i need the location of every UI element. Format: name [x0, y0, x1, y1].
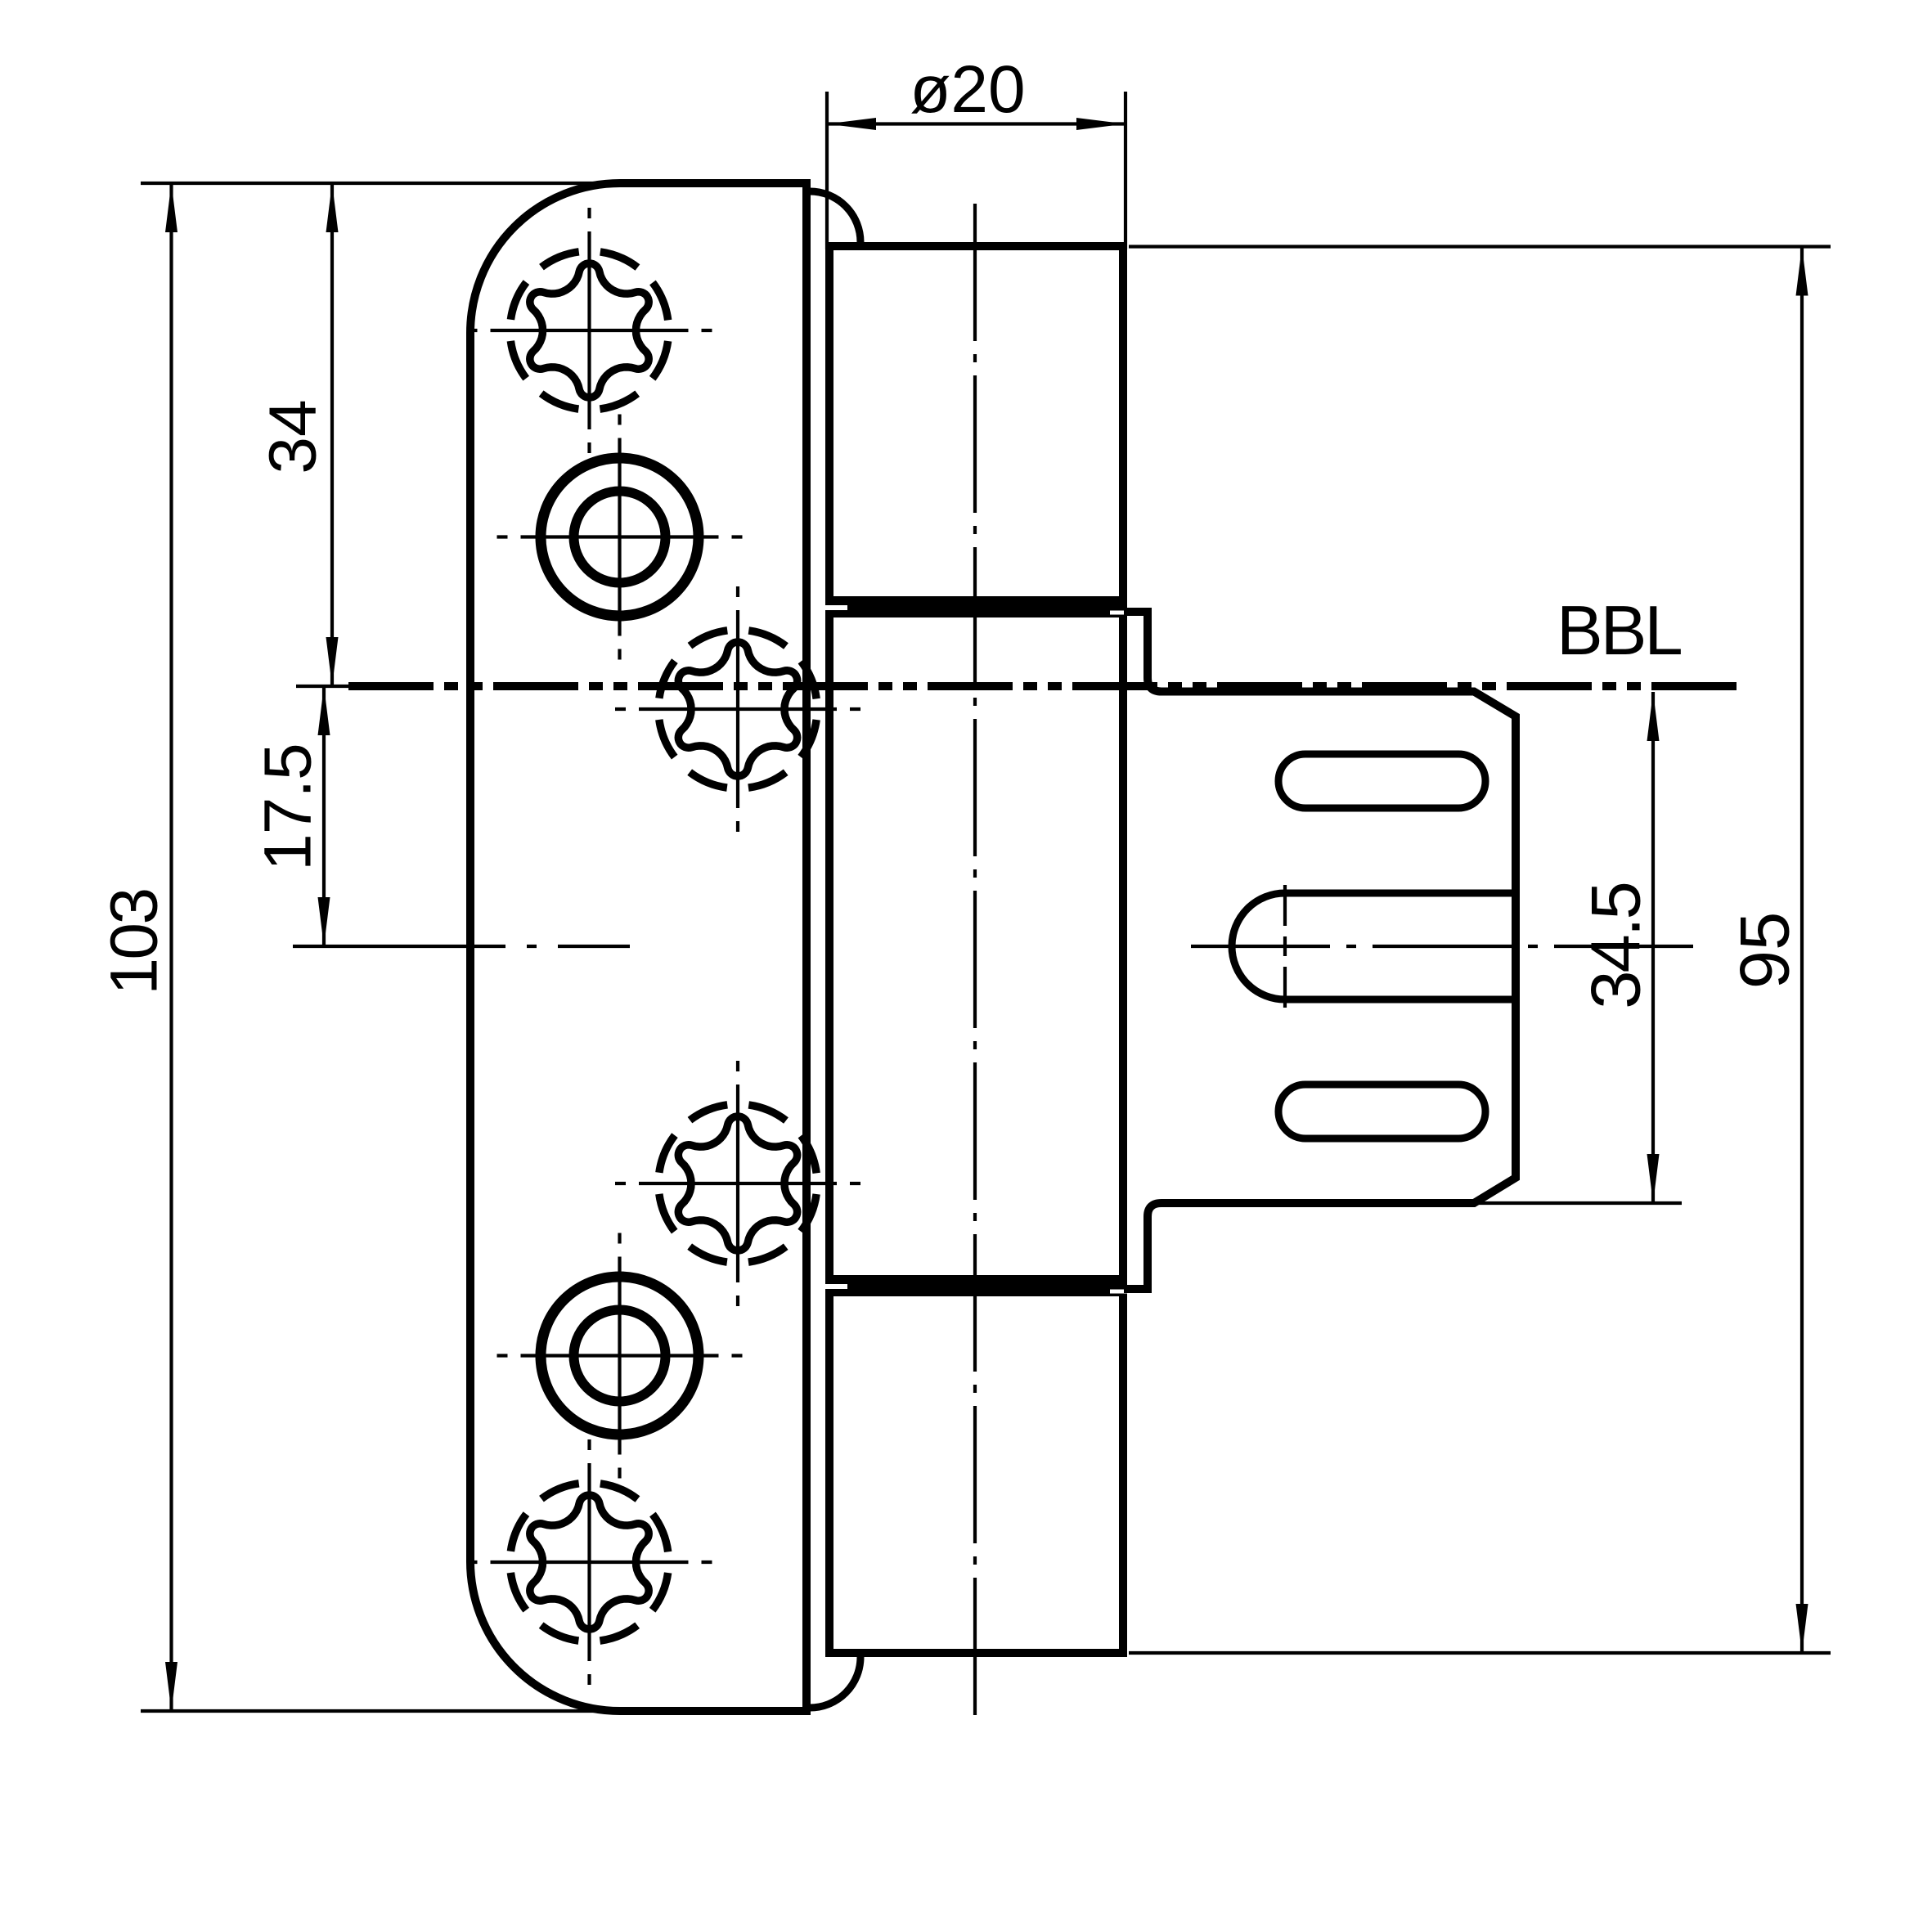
svg-text:BBL: BBL [1557, 592, 1681, 670]
svg-text:103: 103 [97, 889, 172, 995]
svg-text:95: 95 [1727, 912, 1804, 990]
svg-text:34: 34 [256, 399, 330, 474]
svg-text:ø20: ø20 [910, 52, 1025, 127]
svg-text:34.5: 34.5 [1578, 883, 1656, 1008]
svg-text:17.5: 17.5 [251, 743, 326, 871]
